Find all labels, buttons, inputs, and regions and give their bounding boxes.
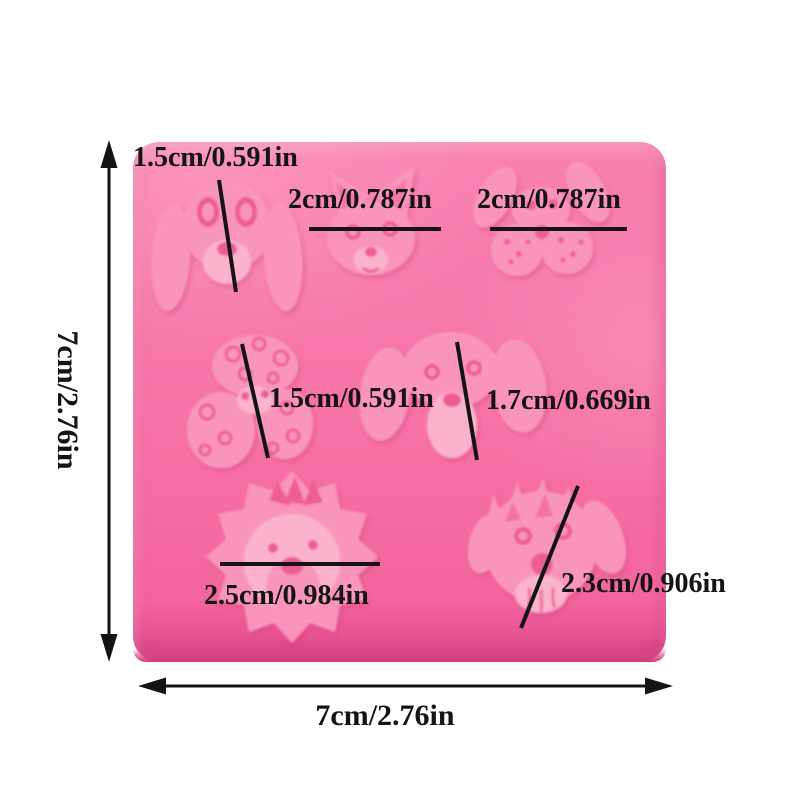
size-label-sheepdog: 2.5cm/0.984in (204, 581, 369, 612)
size-label-spaniel: 2cm/0.787in (477, 185, 621, 216)
size-label-terrier: 2.3cm/0.906in (561, 569, 726, 600)
size-label-poodle: 1.5cm/0.591in (269, 384, 434, 415)
product-image: 1.5cm/0.591in 2cm/0.787in 2cm/0.787in 1.… (0, 0, 800, 800)
size-label-basset: 1.5cm/0.591in (133, 143, 298, 174)
sheepdog-cavity (206, 471, 378, 643)
overall-width-label-wrap: 7cm/2.76in (285, 699, 485, 732)
overall-height-label-wrap: 7cm/2.76in (48, 300, 88, 500)
overall-height-label: 7cm/2.76in (52, 330, 85, 469)
basset-hound-cavity (148, 181, 305, 312)
chihuahua-cavity (327, 166, 415, 275)
mold-bottom-edge (133, 649, 666, 662)
height-arrow (101, 140, 118, 662)
size-label-chihuahua: 2cm/0.787in (288, 185, 432, 216)
overall-width-label: 7cm/2.76in (315, 699, 454, 732)
size-label-beagle: 1.7cm/0.669in (486, 386, 651, 417)
width-arrow (138, 678, 673, 695)
